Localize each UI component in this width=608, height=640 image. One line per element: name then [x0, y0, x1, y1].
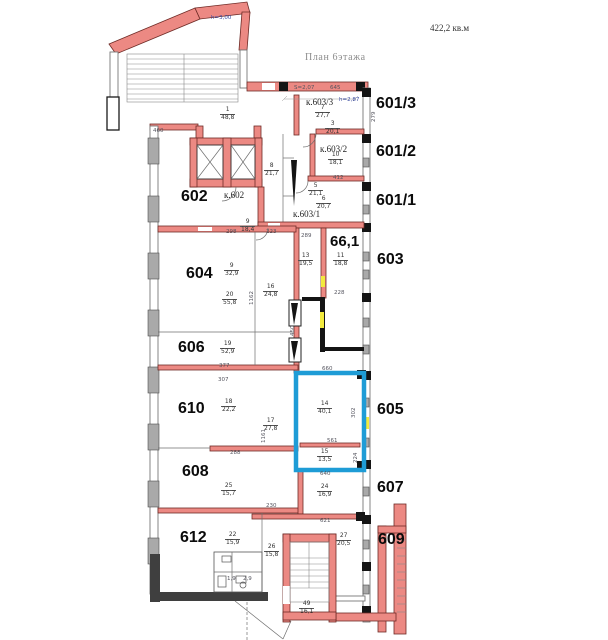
new-wall [325, 347, 364, 351]
staircase-bottom [283, 534, 336, 622]
elevator-block [190, 126, 262, 187]
exterior-walls [107, 2, 406, 640]
fixture [218, 576, 226, 587]
dimension-lines [282, 96, 358, 101]
plan-title: План 6этажа [305, 52, 366, 63]
room-605-selection-outline [296, 373, 364, 470]
yellow-marks [320, 276, 369, 429]
door-leaf [291, 160, 297, 206]
total-area-note: 422,2 кв.м [430, 23, 469, 33]
fixture [236, 576, 246, 583]
highlight-room-605 [296, 370, 366, 470]
floorplan-drawing [0, 0, 608, 640]
new-wall [302, 297, 323, 301]
fixture [222, 556, 231, 562]
staircase-top [127, 54, 238, 102]
floorplan-canvas: План 6этажа 422,2 кв.м 601/3601/2601/160… [0, 0, 608, 640]
